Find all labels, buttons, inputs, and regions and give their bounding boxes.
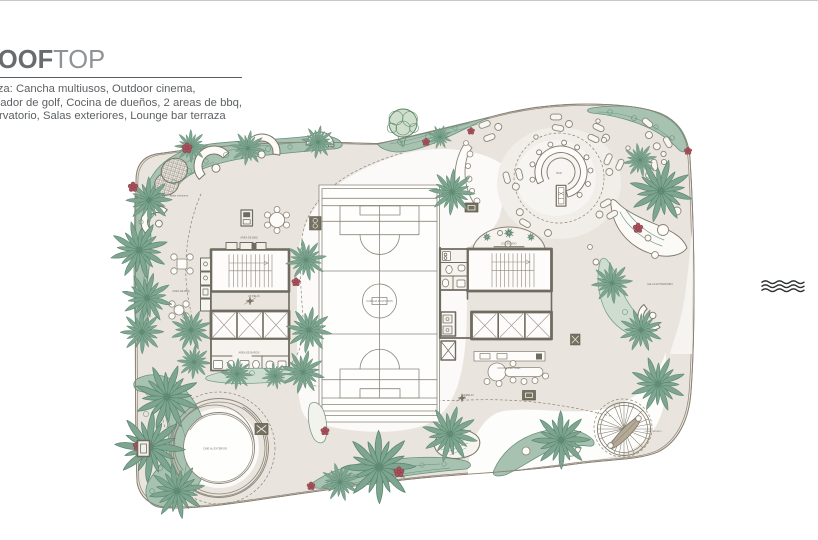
svg-text:CANCHA MULTIUSOS: CANCHA MULTIUSOS (366, 299, 393, 303)
svg-text:MI PELIN: MI PELIN (248, 294, 259, 298)
svg-text:BAR: BAR (556, 171, 561, 175)
svg-text:AREA DE BBQ: AREA DE BBQ (172, 289, 189, 293)
svg-text:COCINA DEL CHEF: COCINA DEL CHEF (497, 366, 521, 370)
svg-text:AREA DE BBQ: AREA DE BBQ (240, 236, 257, 240)
svg-text:CINE AL EXTERIOR: CINE AL EXTERIOR (203, 447, 227, 451)
svg-text:MI PELIN: MI PELIN (462, 393, 473, 397)
svg-text:ESCENARIO: ESCENARIO (501, 242, 516, 246)
svg-text:SALAS EXTERIORES: SALAS EXTERIORES (647, 282, 673, 286)
svg-text:OBSERVATORIO: OBSERVATORIO (644, 430, 661, 433)
svg-text:Salas exteriores: Salas exteriores (170, 194, 189, 198)
